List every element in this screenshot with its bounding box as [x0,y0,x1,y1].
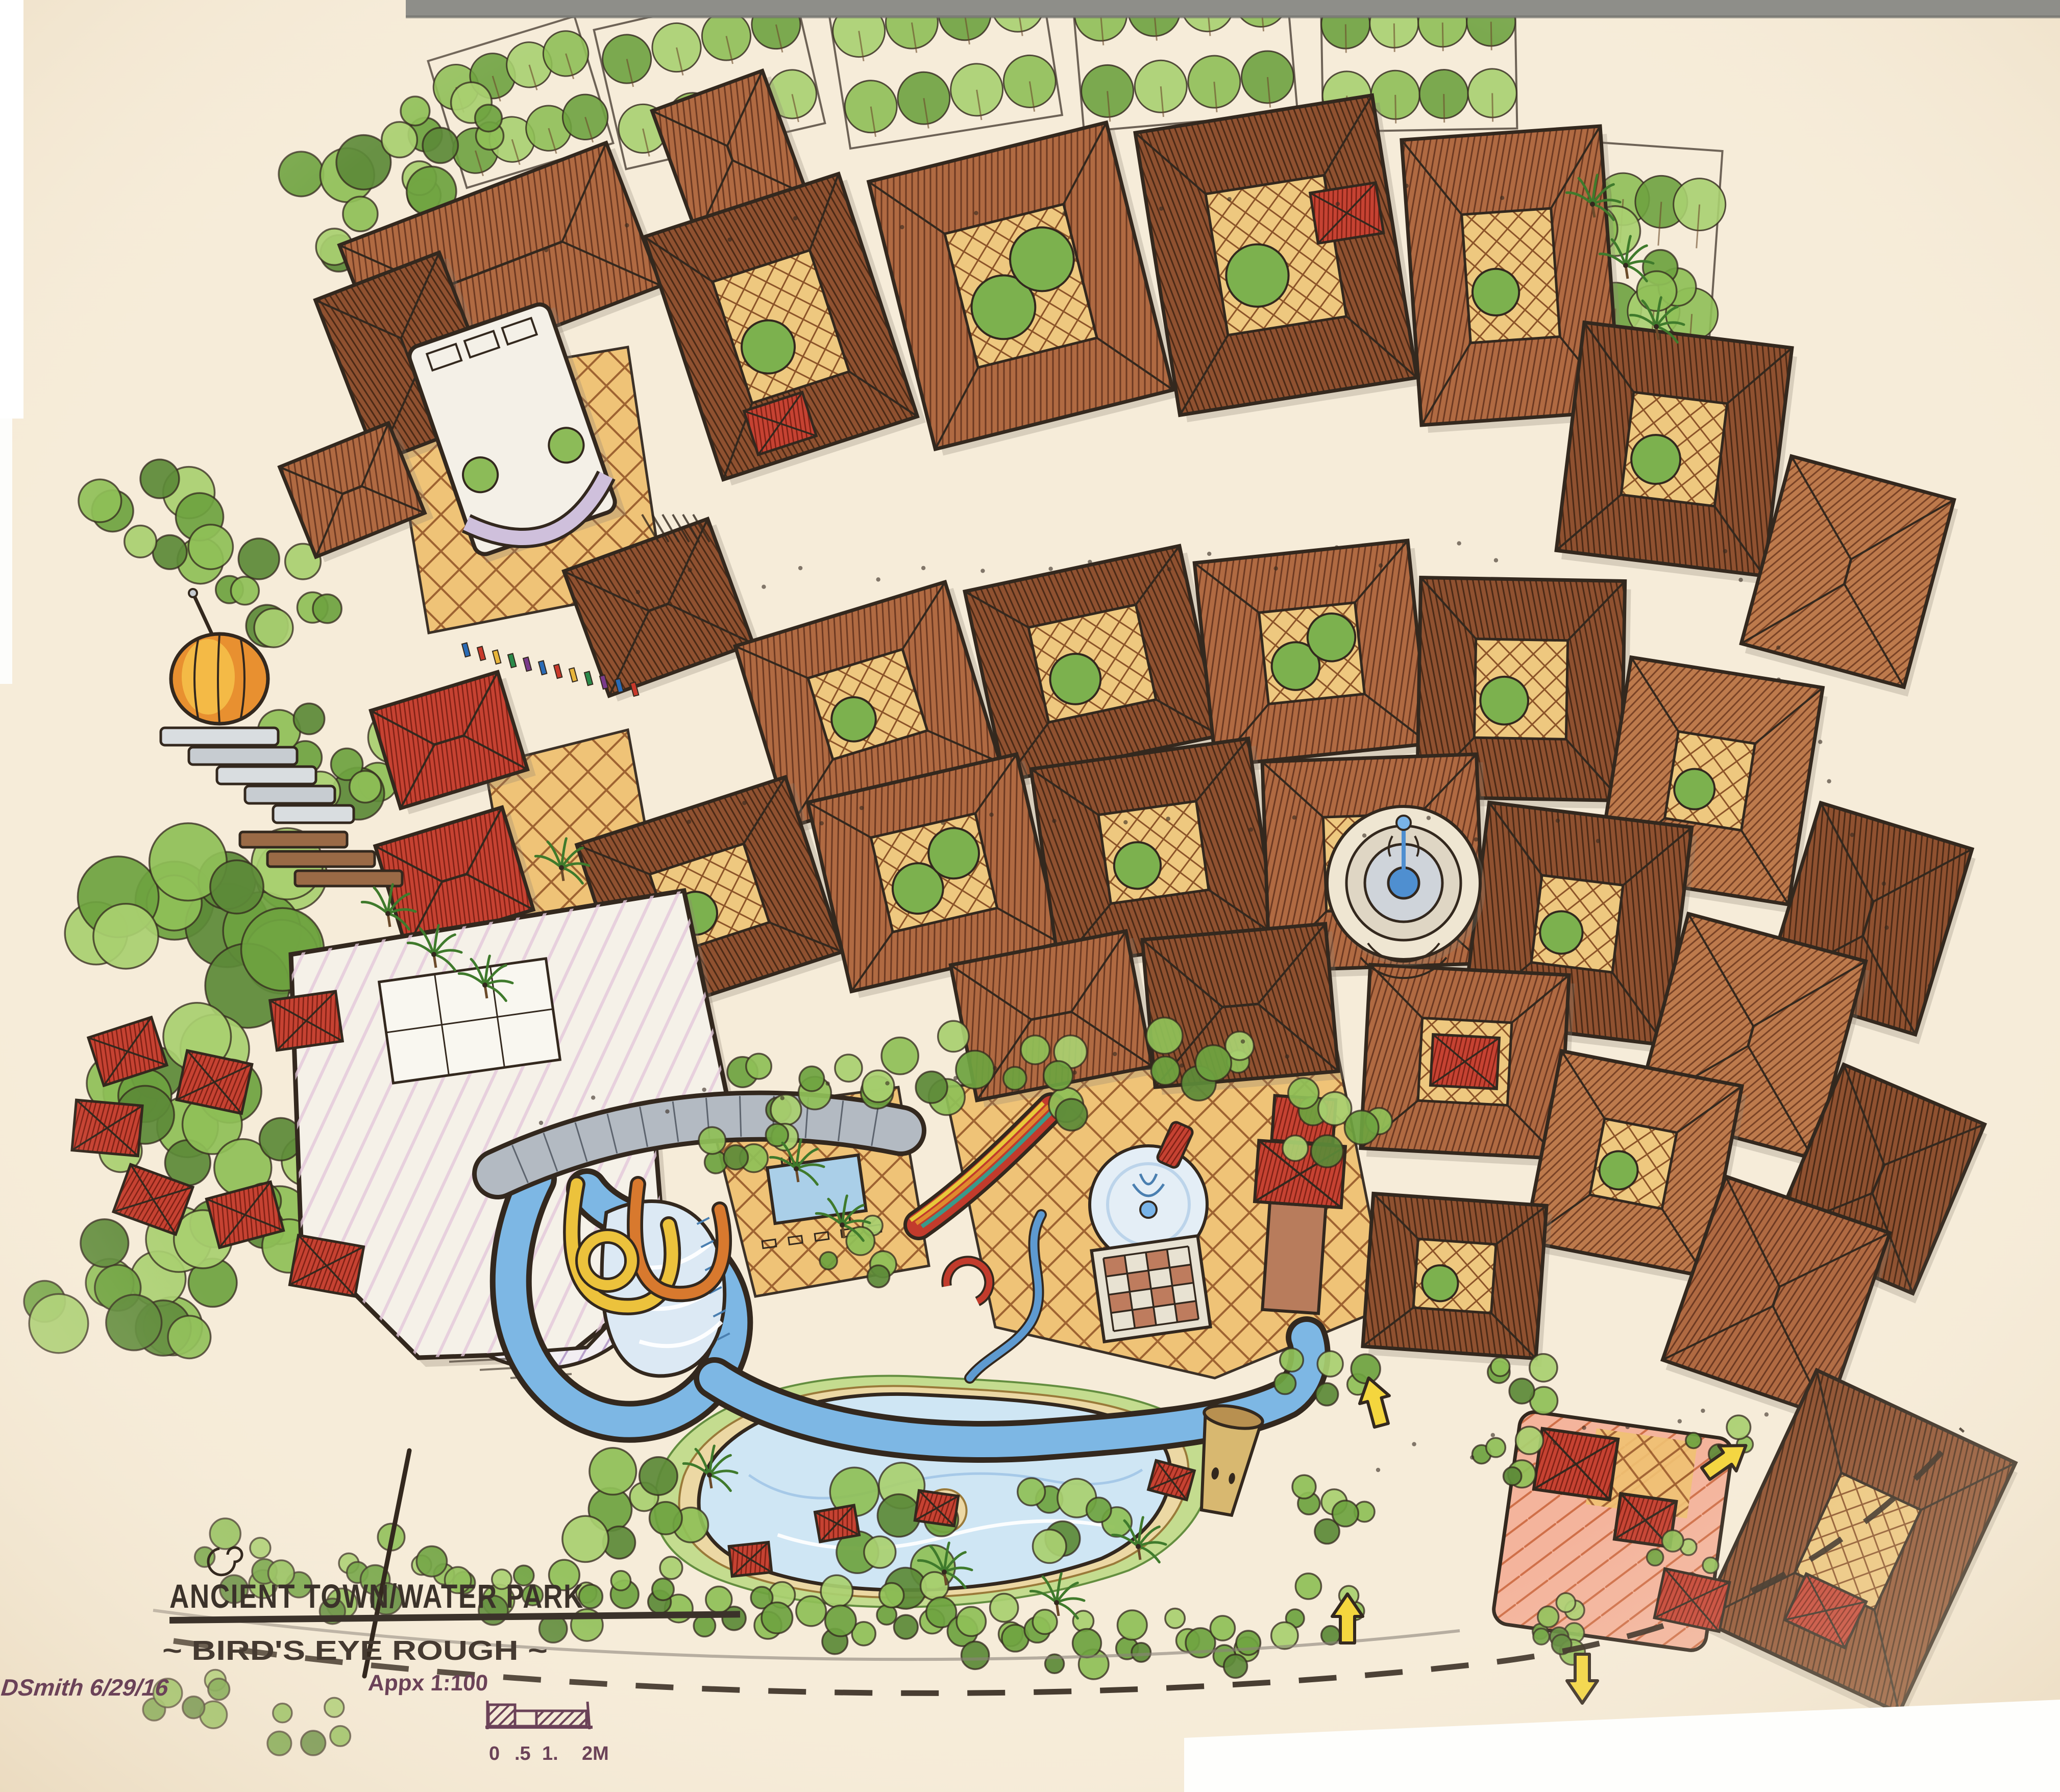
street-dot [1596,839,1600,843]
street-dot [1678,1419,1682,1423]
courtyard-building [1194,540,1436,774]
street-dot [1738,578,1743,582]
street-dot [900,225,904,229]
street-dot [1553,1441,1557,1445]
street-dot [780,1096,784,1100]
street-dot [1556,819,1560,823]
street-dot [1818,740,1822,744]
red-roof-hut [72,1100,142,1156]
street-dot [1249,827,1253,831]
street-dot [974,211,978,215]
street-dot [1274,567,1278,571]
street-dot [665,1110,669,1114]
street-dot [1285,1054,1289,1059]
street-dot [1928,984,1932,988]
street-dot [1052,819,1056,823]
street-dot [1336,202,1340,206]
street-dot [825,1082,829,1086]
street-dot [1827,779,1831,783]
street-dot [1850,833,1854,837]
street-dot [1723,549,1727,553]
street-dot [885,1081,889,1085]
street-dot [1626,1425,1630,1429]
street-dot [876,577,880,581]
street-dot [953,1076,958,1080]
street-dot [702,1088,706,1092]
street-dot [1167,567,1171,571]
street-dot [1412,1442,1416,1446]
street-dot [1227,197,1231,201]
street-dot [1582,1426,1586,1430]
game-court [1091,1236,1210,1341]
street-dot [1701,1409,1705,1413]
street-dot [742,801,746,805]
red-roof-hut [729,1542,772,1576]
scale-tick-half: .5 [514,1743,531,1764]
street-dot [1405,184,1409,188]
street-dot [993,1066,997,1070]
scale-tick-2m: 2M [582,1743,609,1764]
street-dot [1500,196,1504,200]
courtyard-building [1135,94,1424,423]
street-dot [1764,1412,1769,1416]
skylight-court [379,959,560,1083]
street-dot [1427,816,1431,820]
courtyard-building [1555,323,1798,585]
sketch-page: ANCIENT TOWN/WATER PARK ~ BIRD'S EYE ROU… [0,0,2060,1792]
street-dot [1884,925,1889,929]
paper-edge-left [0,0,23,419]
street-dot [1777,677,1781,681]
street-dot [1335,545,1339,549]
street-dot [1123,820,1127,824]
street-dot [1048,567,1052,571]
street-dot [1474,837,1478,841]
courtyard-building [1362,1194,1553,1367]
street-dot [1159,207,1163,211]
street-dot [1379,563,1383,568]
street-dot [980,569,985,573]
street-dot [1180,1064,1184,1068]
street-dot [688,568,692,572]
red-roof-hut [289,1235,363,1296]
street-dot [1362,833,1366,838]
street-dot [1470,1455,1474,1459]
street-dot [539,1121,543,1125]
scanner-edge-strip [406,0,2060,17]
street-dot [625,223,629,227]
street-dot [860,806,864,810]
street-dot [798,566,802,570]
street-dot [762,585,766,589]
street-dot [1491,1433,1495,1437]
street-dot [1241,1039,1245,1043]
street-dot [1494,558,1498,562]
site-plan-sketch: ANCIENT TOWN/WATER PARK ~ BIRD'S EYE ROU… [0,0,2060,1792]
courtyard-building [1360,965,1575,1167]
sheet-title: ANCIENT TOWN/WATER PARK [169,1577,584,1615]
street-dot [793,216,797,220]
street-dot [1072,1070,1076,1074]
street-dot [820,821,824,825]
scale-tick-0: 0 [489,1743,500,1764]
red-roof-hut [915,1490,958,1526]
street-dot [544,248,548,252]
street-dot [591,1095,595,1099]
signature-date: DSmith 6/29/16 [0,1674,170,1701]
street-dot [728,237,732,241]
street-dot [636,590,640,594]
street-dot [941,821,945,825]
street-dot [1088,560,1092,564]
street-dot [1776,646,1780,650]
street-dot [1062,211,1066,215]
street-dot [921,566,925,570]
street-dot [1113,1052,1117,1056]
street-dot [687,820,691,824]
red-roof-hut [270,991,342,1050]
street-dot [989,813,993,817]
street-dot [1376,1468,1380,1472]
red-roof-hut [815,1505,859,1542]
sheet-subtitle: ~ BIRD'S EYE ROUGH ~ [162,1635,548,1666]
street-dot [1882,881,1886,886]
street-dot [1166,817,1170,821]
scale-note: Appx 1:100 [367,1671,489,1696]
street-dot [1207,552,1211,556]
street-dot [1292,816,1296,820]
scale-tick-1: 1. [542,1743,558,1764]
street-dot [1457,541,1461,545]
